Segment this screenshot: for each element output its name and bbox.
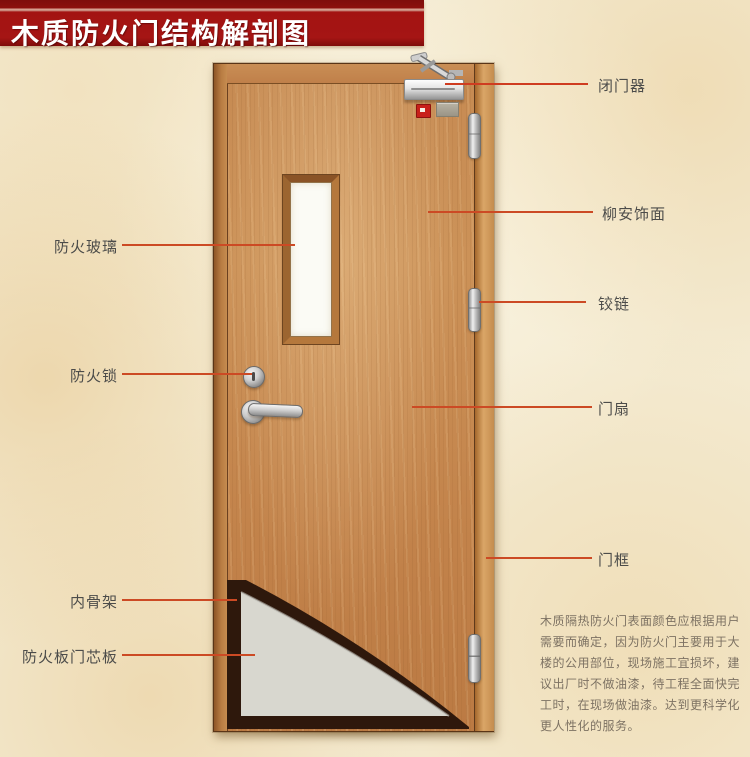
label-door-frame: 门框	[598, 549, 630, 570]
title-banner: 木质防火门结构解剖图	[0, 0, 424, 46]
note-line: 更人性化的服务。	[540, 716, 726, 737]
lock-cylinder	[243, 366, 265, 388]
page-title: 木质防火门结构解剖图	[11, 12, 311, 52]
nameplate	[436, 102, 459, 117]
leader-line-door-frame	[486, 557, 592, 559]
label-fire-lock: 防火锁	[70, 365, 118, 386]
fire-rating-sticker	[416, 104, 431, 118]
note-line: 需要而确定，因为防火门主要用于大	[540, 632, 726, 653]
label-core-panel: 防火板门芯板	[22, 646, 118, 667]
door-closer-slot	[411, 88, 455, 90]
label-door-closer: 闭门器	[598, 75, 646, 96]
leader-line-veneer	[428, 211, 593, 213]
leader-line-inner-skeleton	[122, 599, 237, 601]
core-panel-shape	[241, 592, 449, 716]
note-line: 议出厂时不做油漆，待工程全面快完	[540, 674, 726, 695]
door-handle	[248, 403, 304, 418]
fire-glass-window	[283, 175, 339, 344]
label-veneer: 柳安饰面	[602, 203, 666, 224]
fire-rating-sticker-core	[420, 108, 425, 112]
leader-line-door-leaf	[412, 406, 592, 408]
keyhole	[252, 372, 255, 381]
hinge-middle	[468, 288, 481, 332]
note-line: 工时，在现场做油漆。达到更科学化	[540, 695, 726, 716]
leader-line-hinge	[479, 301, 586, 303]
leader-line-core-panel	[122, 654, 255, 656]
label-fire-glass: 防火玻璃	[54, 236, 118, 257]
hinge-top	[468, 113, 481, 159]
label-door-leaf: 门扇	[598, 398, 630, 419]
leader-line-fire-glass	[122, 244, 295, 246]
note-line: 木质隔热防火门表面颜色应根据用户	[540, 611, 726, 632]
hinge-bottom	[468, 634, 481, 683]
description-note: 木质隔热防火门表面颜色应根据用户 需要而确定，因为防火门主要用于大 楼的公用部位…	[540, 611, 726, 737]
label-inner-skeleton: 内骨架	[70, 591, 118, 612]
note-line: 楼的公用部位，现场施工宜损坏，建	[540, 653, 726, 674]
leader-line-fire-lock	[122, 373, 252, 375]
door-frame-right-jamb	[474, 64, 494, 731]
label-hinge: 铰链	[598, 293, 630, 314]
door-cutaway-section	[226, 576, 471, 731]
fire-door	[213, 63, 494, 732]
leader-line-door-closer	[445, 83, 588, 85]
